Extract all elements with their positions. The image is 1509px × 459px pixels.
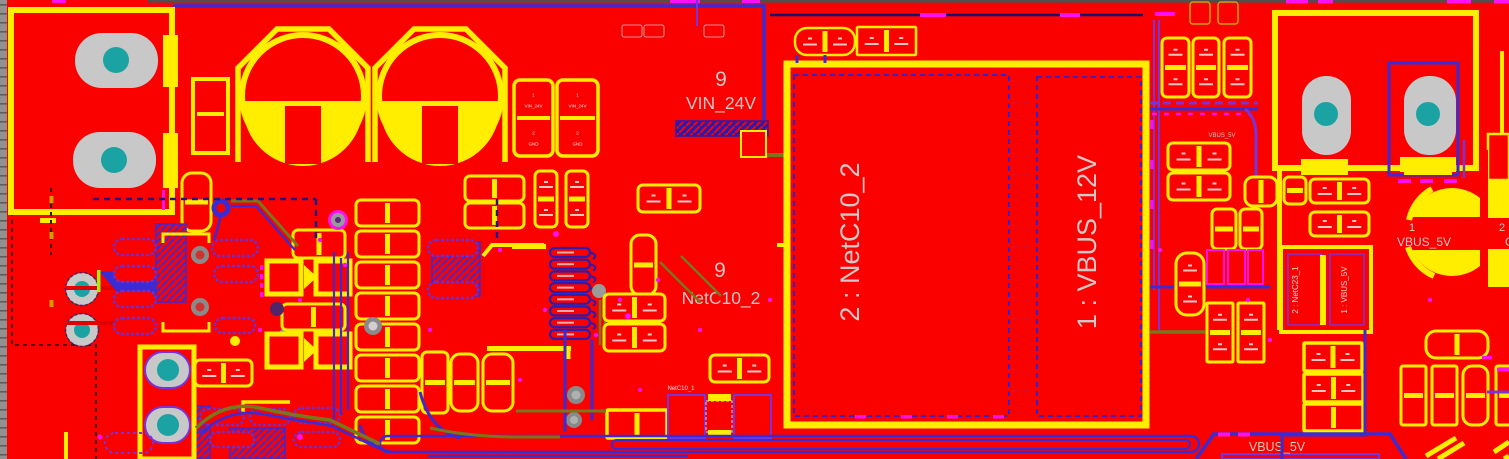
svg-text:2: 2 [1499, 222, 1505, 234]
svg-text:1: 1 [1409, 222, 1415, 234]
svg-text:VBUS_5V: VBUS_5V [1249, 440, 1306, 454]
svg-text:1 : VBUS_5V: 1 : VBUS_5V [1340, 266, 1349, 314]
svg-text:2 : NetC23_1: 2 : NetC23_1 [1291, 266, 1300, 314]
svg-text:NetC10_1: NetC10_1 [667, 386, 695, 392]
svg-text:VBUS_5V: VBUS_5V [1208, 133, 1235, 139]
svg-text:NetC10_2: NetC10_2 [682, 288, 761, 309]
svg-text:9: 9 [714, 259, 726, 282]
svg-text:VIN_24V: VIN_24V [686, 93, 756, 114]
svg-text:VIN_24V: VIN_24V [568, 103, 586, 108]
svg-text:9: 9 [715, 68, 727, 91]
svg-text:2 : NetC10_2: 2 : NetC10_2 [835, 162, 865, 321]
svg-text:GN: GN [1505, 235, 1509, 249]
svg-text:1 : VBUS_12V: 1 : VBUS_12V [1072, 155, 1102, 329]
svg-text:GND: GND [529, 141, 540, 146]
svg-text:GND: GND [573, 141, 584, 146]
svg-text:VIN_24V: VIN_24V [524, 103, 542, 108]
svg-text:VBUS_5V: VBUS_5V [1397, 235, 1451, 249]
